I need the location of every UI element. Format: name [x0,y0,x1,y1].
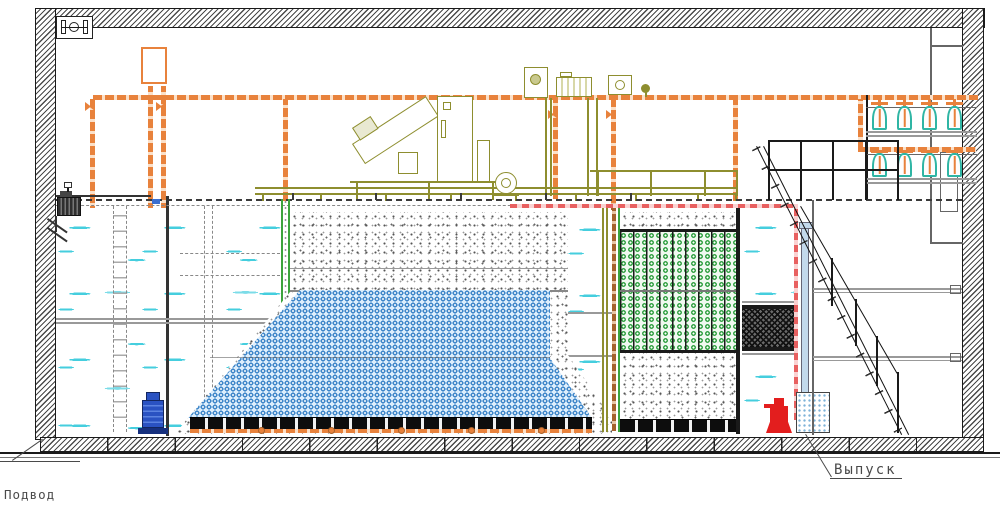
aux-dial [615,80,625,90]
rack-shelf [866,178,977,180]
wall-duct-line [602,205,604,432]
beam-anchor [950,353,961,362]
cabinet-side-unit [477,140,490,182]
inlet-label: Подвод сточных вод на очистку [4,464,64,512]
grinder-motor [60,191,72,197]
hanger-tick [460,193,462,200]
inlet-pump-base [138,428,168,434]
diffuser-tee [871,102,888,105]
railing-post [800,140,802,200]
handrail-post [831,258,833,306]
pipe-coupling [468,427,475,434]
outlet-label-underline [830,478,902,479]
biofilter-right-wall [736,206,740,434]
air-duct [545,98,547,196]
floor-air-pipe [190,429,592,433]
green-media-biofilter [620,232,736,352]
ground-line [0,457,1000,458]
hanger-tick [292,193,294,200]
tank-beam [56,322,283,324]
ceiling-wall [35,8,985,28]
rack-shelf [866,131,977,133]
flange-stem [645,92,647,97]
aux-unit [608,75,632,95]
left-wall [35,8,56,440]
railing-post [897,140,899,200]
support-frame [590,170,738,172]
screen-table-leg [492,181,494,200]
pipe-coupling [328,427,335,434]
pipe-fitting [152,199,160,204]
hanger-tick [545,193,547,200]
blower-cabinet [524,67,548,98]
clarifier-beam [742,301,796,303]
beam-anchor [950,285,961,294]
screen-table-leg [356,181,358,200]
cabinet-vent [443,102,451,110]
bracket-post [55,216,57,232]
inlet-label-line1: Подвод [4,489,64,501]
ground-line [0,452,1000,454]
right-wall [962,8,984,448]
filter-bottom-bar [742,347,796,351]
support-post [650,170,652,196]
hidden-edge-line [180,275,280,276]
biofilter-lower-media [620,353,736,419]
handrail-post [855,299,857,346]
ceiling-fan-icon [56,16,93,39]
screen-table-leg [428,181,430,200]
outlet-pump-top [774,398,784,406]
biofilter-top-media [620,212,736,230]
blower-dial [530,74,541,85]
expansion-tank [141,47,167,84]
rack-shelf [866,135,977,137]
support-post [736,170,738,196]
floor-slab [40,437,984,452]
blower-motor [556,77,592,97]
handrail-post [876,336,878,386]
air-diffuser-icon [922,153,937,177]
hanger-tick [375,193,377,200]
air-diffuser-icon [897,106,912,130]
air-duct [550,98,552,196]
floating-media-layer [290,212,568,292]
pipe-coupling [398,427,405,434]
feed-pump-hub [501,178,511,188]
pipe-coupling [258,427,265,434]
support-post [704,170,706,196]
support-post [597,170,599,196]
railing-post [832,140,834,200]
outlet-label: Выпуск [834,462,897,478]
dark-filter-block [742,309,796,348]
railing-post [865,140,867,200]
air-diffuser-icon [872,106,887,130]
niche-line [930,45,963,47]
niche-line [930,242,963,244]
control-cabinet [437,96,473,182]
treatment-plant-section-drawing: Подвод сточных вод на очистку Выпуск [0,0,1000,512]
water-level-line [56,205,561,206]
clarifier-beam [742,353,796,355]
wall-duct-line [606,205,608,432]
air-duct [587,98,589,196]
air-diffuser-icon [872,153,887,177]
air-drop-pipe [283,99,288,201]
aeration-grid [620,419,736,432]
room-beam [813,360,962,362]
diffuser-tee [921,102,938,105]
hanger-tick [630,193,632,200]
diffuser-tee [946,102,963,105]
air-diffuser-icon [922,106,937,130]
hidden-edge-line [180,253,280,254]
inlet-pump-body [142,400,164,428]
media-support-line [290,268,568,269]
inlet-grinder [57,197,81,216]
fan-axis [62,27,88,29]
blower-motor-tab [560,72,572,77]
sensor-stem [67,188,69,192]
feed-pump-base [493,193,519,196]
rack-shelf [866,182,977,184]
diffuser-tee [896,102,913,105]
air-diffuser-icon [897,153,912,177]
outlet-pump-body [770,406,788,422]
biofilter-mid-line [620,290,736,292]
handrail-post [897,372,899,433]
pipe-coupling [538,427,545,434]
air-diffuser-icon [947,153,962,177]
walkway-level-line [56,199,962,201]
outlet-pump-skirt [766,422,792,433]
tank-divider-wall [166,196,169,436]
air-diffuser-icon [947,106,962,130]
chase-wall-line [812,200,814,435]
media-mid-line [210,357,550,358]
stair-handrail [800,206,897,374]
cabinet-handle [441,120,446,138]
sludge-pipe-horizontal [510,204,798,208]
screen-chute [398,152,418,174]
inlet-label-underline [0,461,80,462]
tank-beam [56,318,283,320]
